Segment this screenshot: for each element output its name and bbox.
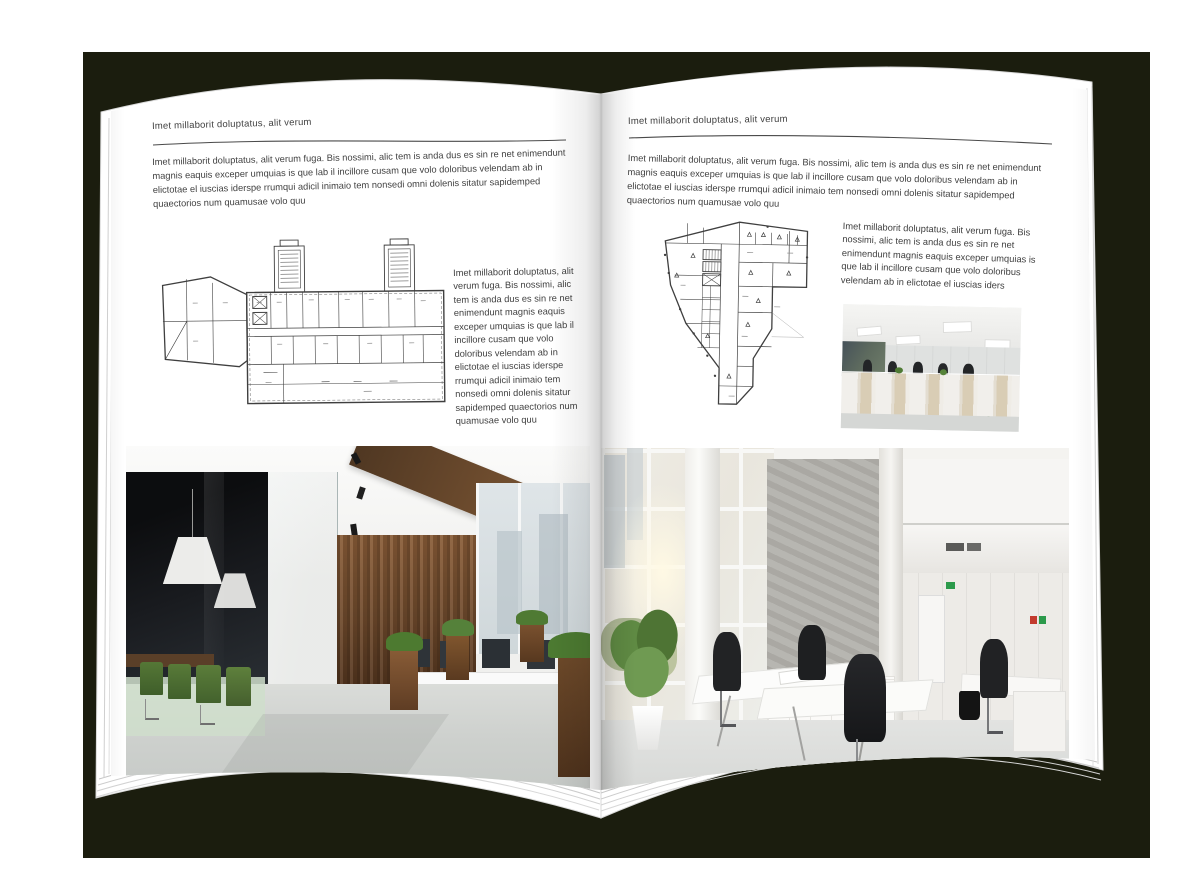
left-side-paragraph: Imet millaborit doluptatus, alit verum f… — [453, 265, 584, 429]
wood-planter — [390, 647, 418, 710]
green-chair — [196, 665, 222, 702]
left-header-rule — [152, 136, 568, 148]
exit-sign — [946, 582, 955, 588]
right-intro-paragraph: Imet millaborit doluptatus, alit verum f… — [627, 152, 1044, 218]
mezzanine-balcony — [894, 459, 1070, 575]
chair-base — [720, 691, 736, 727]
left-page: Imet millaborit doluptatus, alit verum I… — [105, 64, 601, 816]
concrete-wall — [767, 459, 893, 680]
planter-grass — [386, 632, 423, 651]
office-chair — [713, 632, 741, 691]
corner-grass — [548, 632, 590, 658]
green-chair — [168, 664, 191, 699]
safety-sign-red — [1030, 616, 1037, 624]
office-chair — [798, 625, 826, 680]
wood-planter — [520, 621, 543, 662]
chair-base — [200, 705, 215, 726]
left-office-photo — [126, 446, 590, 818]
monitor — [482, 639, 510, 668]
safety-sign-green — [1039, 616, 1046, 624]
green-chair — [226, 667, 252, 706]
left-page-title: Imet millaborit doluptatus, alit verum — [152, 117, 312, 132]
corridor-door — [918, 595, 945, 684]
vent-grille — [967, 543, 981, 551]
corner-planter — [558, 651, 590, 777]
wood-planter — [446, 632, 469, 680]
right-small-office-photo — [841, 304, 1022, 432]
glass-partition — [268, 472, 339, 688]
balcony-rail — [894, 523, 1070, 525]
right-header-rule — [628, 132, 1054, 146]
office-chair — [844, 654, 886, 742]
right-floor-plan — [644, 215, 810, 420]
lamp-cord — [192, 489, 193, 536]
right-page-title: Imet millaborit doluptatus, alit verum — [628, 114, 788, 127]
brochure-mockup: Imet millaborit doluptatus, alit verum I… — [0, 0, 1200, 891]
light-panel — [942, 321, 971, 333]
waste-bin — [959, 691, 980, 720]
uplight-glow — [777, 459, 810, 547]
right-page: Imet millaborit doluptatus, alit verum I… — [600, 56, 1102, 816]
floor — [841, 413, 1019, 432]
chair-base — [145, 699, 160, 720]
left-floor-plan — [152, 230, 451, 421]
left-intro-paragraph: Imet millaborit doluptatus, alit verum f… — [152, 147, 571, 212]
side-desk-return — [1013, 691, 1066, 752]
cabinet-plant — [895, 367, 902, 373]
potted-plant-leaves — [610, 610, 685, 720]
light-panel — [896, 335, 922, 346]
planter-grass — [442, 619, 474, 636]
office-chair — [980, 639, 1008, 698]
uplight-glow — [815, 459, 848, 547]
vent-grille — [946, 543, 964, 551]
green-chair — [140, 662, 163, 695]
chair-base — [987, 698, 1003, 734]
planter-grass — [516, 610, 548, 625]
cabinet-row — [841, 371, 1020, 418]
right-side-paragraph: Imet millaborit doluptatus, alit verum f… — [841, 220, 1043, 294]
